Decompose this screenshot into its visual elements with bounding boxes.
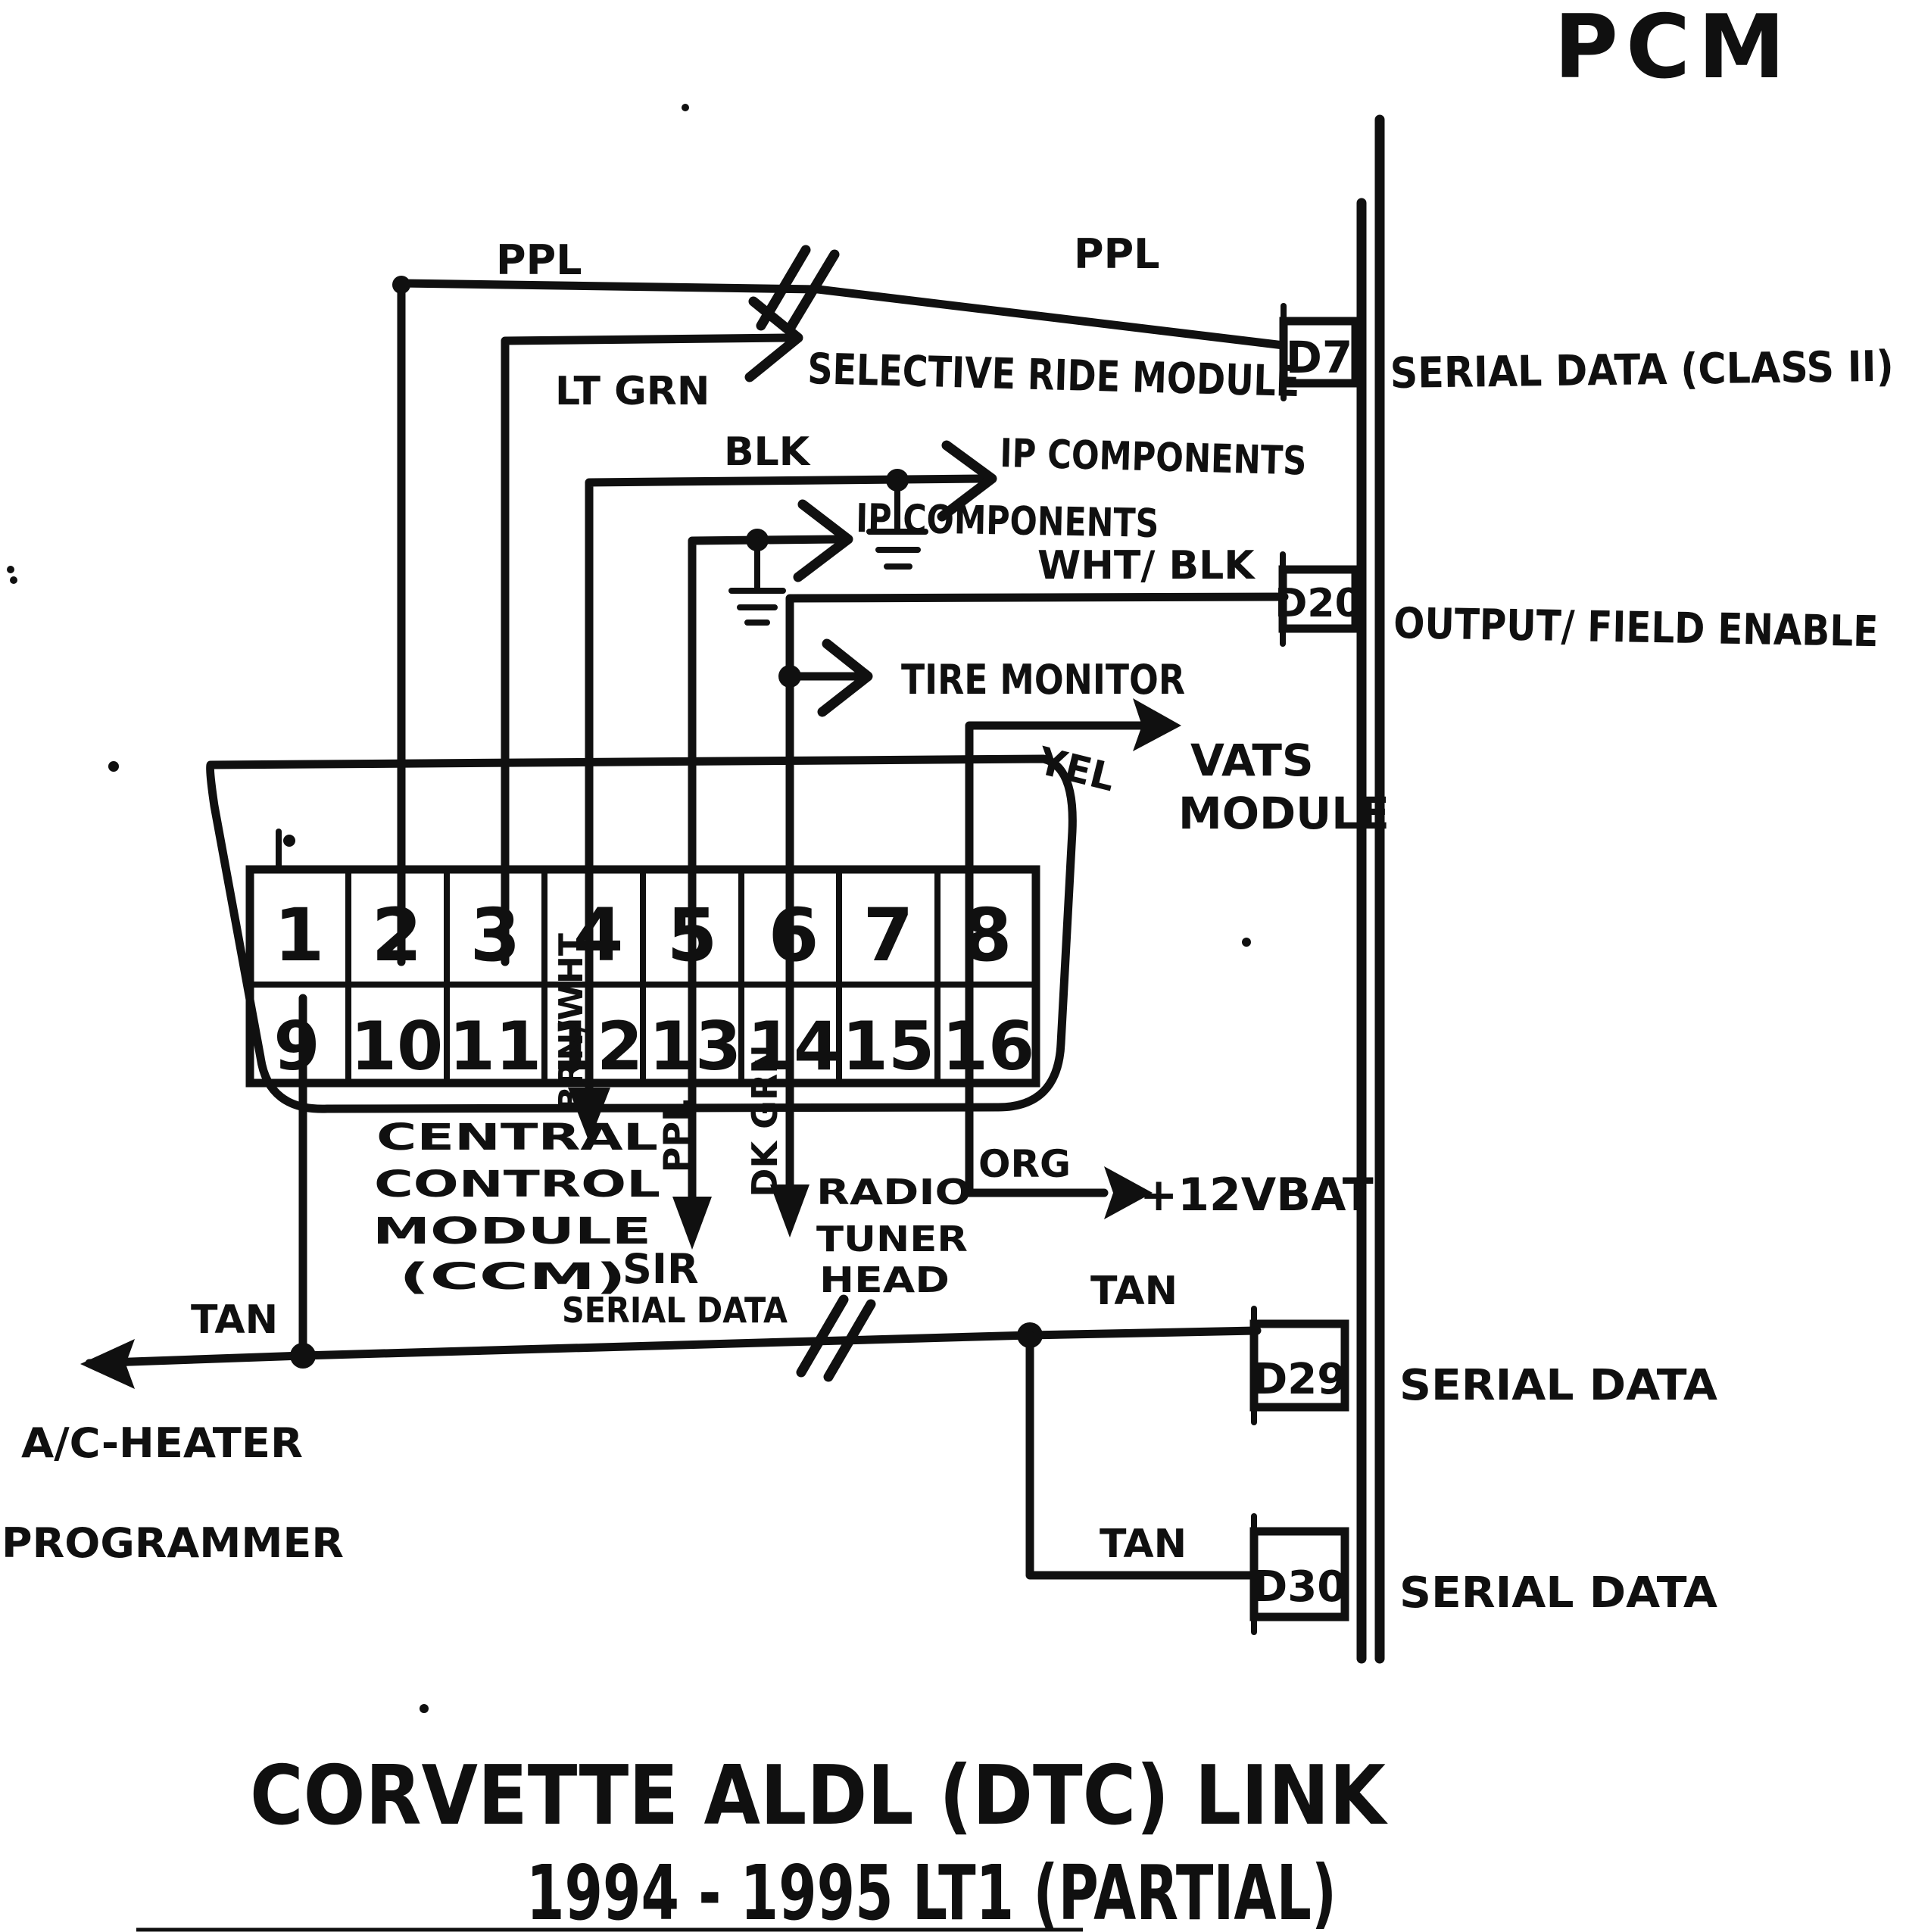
- diagram-title-line2: 1994 - 1995 LT1 (PARTIAL): [526, 1849, 1337, 1932]
- module-radio-line3: HEAD: [819, 1259, 950, 1300]
- pin-15: 15: [842, 1007, 934, 1085]
- module-sir-line1: SIR: [622, 1245, 699, 1293]
- sir-arrowhead: [672, 1197, 712, 1250]
- wire-label-ppl-left: PPL: [496, 236, 582, 284]
- wire-label-yel: YEL: [1033, 738, 1119, 800]
- signal-output-field-enable: OUTPUT/ FIELD ENABLE: [1393, 599, 1879, 657]
- wire-label-wht-blk: WHT/ BLK: [1037, 543, 1256, 588]
- module-ccm-block: CENTRAL CONTROL MODULE (CCM): [373, 1116, 660, 1298]
- module-selective-ride: SELECTIVE RIDE MODULE: [807, 345, 1300, 407]
- module-ccm-line1: CENTRAL: [376, 1116, 658, 1159]
- pcm-label: PCM: [1554, 0, 1793, 98]
- wire-label-blk: BLK: [724, 429, 811, 475]
- terminal-d29-label: D29: [1252, 1355, 1346, 1404]
- signal-serial-data-d30: SERIAL DATA: [1399, 1568, 1718, 1618]
- module-vats-line1: VATS: [1190, 735, 1314, 786]
- tan-junction-dot-1: [290, 1343, 316, 1369]
- wire-label-ppl-sir: PPL: [656, 1100, 697, 1173]
- module-ip-components-2: IP COMPONENTS: [856, 496, 1159, 547]
- ppl-corner-blob: [392, 276, 410, 294]
- signal-serial-data-class2: SERIAL DATA (CLASS II): [1390, 342, 1894, 398]
- pin-7: 7: [863, 893, 914, 978]
- terminal-d30-label: D30: [1252, 1562, 1346, 1612]
- wiring-diagram-page: PCM 1 2 3 4 5 6 7 8 9 10 11 12 13 14 15 …: [0, 0, 1906, 1932]
- wire-blk-pin4-and-brnwht-pin12: [589, 479, 981, 1089]
- wire-label-tan-ac: TAN: [191, 1297, 278, 1343]
- module-ac-heater-line1: A/C-HEATER: [21, 1419, 303, 1467]
- wire-label-tan-d30: TAN: [1100, 1522, 1187, 1567]
- pin-11: 11: [449, 1007, 541, 1085]
- module-sir-line2: SERIAL DATA: [562, 1290, 788, 1331]
- module-radio-block: RADIO TUNER HEAD: [816, 1172, 972, 1300]
- pin-10: 10: [351, 1007, 443, 1085]
- pin-1: 1: [274, 893, 325, 978]
- module-ac-heater-line2: PROGRAMMER: [2, 1519, 344, 1567]
- module-vats-line2: MODULE: [1178, 788, 1390, 839]
- module-ccm-line2: CONTROL: [374, 1163, 660, 1206]
- wire-label-lt-grn: LT GRN: [555, 369, 710, 414]
- corvette-aldl-diagram: PCM 1 2 3 4 5 6 7 8 9 10 11 12 13 14 15 …: [0, 0, 1906, 1932]
- wire-label-org: ORG: [978, 1142, 1071, 1186]
- pin-16: 16: [942, 1007, 1034, 1085]
- module-radio-line2: TUNER: [816, 1219, 968, 1259]
- ground-symbol-2: [732, 540, 783, 623]
- module-radio-line1: RADIO: [816, 1172, 972, 1213]
- module-tire-monitor: TIRE MONITOR: [901, 656, 1185, 704]
- module-ip-components-1: IP COMPONENTS: [1000, 431, 1307, 485]
- diagram-title-line1: CORVETTE ALDL (DTC) LINK: [250, 1749, 1388, 1843]
- pin-3: 3: [470, 893, 521, 978]
- signal-serial-data-d29: SERIAL DATA: [1399, 1361, 1718, 1410]
- module-ccm-line3: MODULE: [373, 1210, 651, 1253]
- wire-label-dk-grn: DK GRN: [744, 1044, 785, 1197]
- module-battery: +12VBAT: [1140, 1169, 1374, 1222]
- pin-row-2: 9 10 11 12 13 14 15 16: [273, 1007, 1034, 1085]
- grid-corner-dot: [283, 835, 295, 847]
- terminal-d20-label: D20: [1274, 581, 1362, 626]
- pin-2: 2: [372, 893, 423, 978]
- pin-9: 9: [273, 1007, 320, 1085]
- wire-label-tan-d29: TAN: [1090, 1269, 1178, 1314]
- wire-label-ppl-right: PPL: [1074, 230, 1160, 278]
- wire-label-brn-wht: BRN/WHT: [552, 933, 591, 1112]
